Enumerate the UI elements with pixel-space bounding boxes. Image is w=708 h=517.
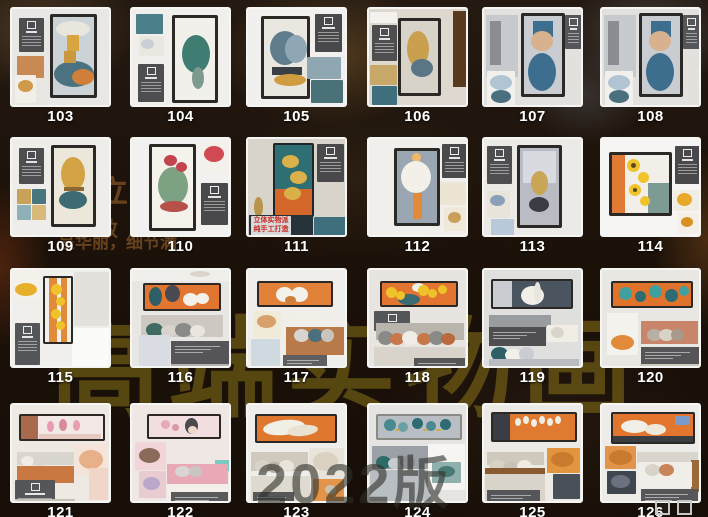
art-shape [440, 419, 451, 430]
corner-marks [648, 500, 692, 517]
art-shape [161, 420, 170, 429]
art-shape [411, 59, 433, 77]
art-shape [555, 416, 561, 424]
art-shape [72, 69, 94, 85]
art-shape [423, 429, 428, 431]
thumbnail-label: 108 [600, 108, 701, 125]
art-shape [679, 286, 689, 296]
thumbnail-item[interactable]: 116 [130, 268, 231, 386]
art-shape [74, 272, 110, 326]
art-shape [529, 197, 549, 212]
art-shape [257, 315, 276, 328]
thumbnail-image[interactable] [600, 137, 701, 237]
thumbnail-item[interactable]: 106 [367, 7, 468, 125]
caption-strip [171, 492, 228, 503]
art-shape [436, 429, 441, 431]
art-shape [412, 418, 423, 429]
art-shape [633, 188, 637, 192]
art-shape [691, 460, 700, 492]
art-shape [51, 309, 61, 319]
thumbnail-item[interactable]: 115 [10, 268, 111, 386]
info-card [15, 323, 40, 365]
art-shape [489, 359, 579, 368]
info-card [372, 25, 397, 61]
thumbnail-item[interactable]: 120 [600, 268, 701, 386]
art-shape [372, 86, 397, 105]
art-shape [160, 201, 188, 212]
art-shape [671, 329, 684, 341]
info-card [19, 148, 44, 184]
art-shape [251, 339, 280, 366]
art-shape [613, 436, 693, 442]
info-card [317, 144, 344, 182]
art-shape [640, 196, 650, 206]
thumbnail-image[interactable] [130, 268, 231, 368]
art-shape [611, 335, 634, 350]
thumbnail-image[interactable] [246, 7, 347, 107]
thumbnail-image[interactable] [482, 268, 583, 368]
art-shape [165, 285, 180, 302]
art-shape [139, 448, 160, 463]
art-shape [282, 155, 299, 168]
thumbnail-label: 122 [130, 504, 231, 517]
thumbnail-image[interactable] [600, 268, 701, 368]
thumbnail-image[interactable] [246, 268, 347, 368]
info-card [683, 15, 700, 49]
art-shape [648, 183, 669, 213]
thumbnail-image[interactable] [10, 403, 111, 503]
thumbnail-image[interactable] [10, 268, 111, 368]
art-shape [631, 163, 636, 168]
art-shape [17, 205, 31, 220]
watermark-edition-text: 2022版 [256, 456, 452, 512]
thumbnail-item[interactable]: 105 [246, 7, 347, 125]
art-shape [176, 162, 187, 172]
art-shape [551, 327, 564, 338]
art-shape [611, 475, 630, 488]
art-shape [61, 157, 85, 191]
art-shape [21, 416, 38, 439]
thumbnail-image[interactable] [482, 137, 583, 237]
thumbnail-item[interactable]: 104 [130, 7, 231, 125]
art-shape [321, 329, 334, 342]
art-shape [56, 321, 65, 330]
thumbnail-item[interactable]: 122 [130, 403, 231, 517]
thumbnail-label: 119 [482, 369, 583, 386]
art-shape [149, 416, 219, 437]
thumbnail-label: 121 [10, 504, 111, 517]
info-card [442, 144, 467, 178]
thumbnail-label: 107 [482, 108, 583, 125]
art-shape [681, 217, 693, 227]
art-shape [645, 464, 660, 476]
info-card [675, 146, 700, 184]
art-shape [290, 171, 307, 184]
art-shape [39, 434, 101, 439]
art-shape [64, 51, 76, 63]
info-card [138, 64, 164, 102]
art-shape [204, 146, 224, 162]
thumbnail-label: 111 [246, 238, 347, 255]
art-shape [143, 477, 160, 490]
info-card [487, 146, 512, 184]
art-shape [158, 167, 188, 205]
art-shape [136, 14, 163, 34]
art-shape [490, 195, 505, 206]
art-shape [56, 297, 65, 306]
thumbnail-item[interactable]: 103 [10, 7, 111, 125]
thumbnail-item[interactable]: 110 [130, 137, 231, 255]
thumbnail-label: 117 [246, 369, 347, 386]
thumbnail-label: 115 [10, 369, 111, 386]
thumbnail-image[interactable] [482, 7, 583, 107]
art-shape [285, 35, 307, 63]
caption-strip [171, 341, 230, 364]
art-shape [677, 193, 692, 206]
art-shape [32, 189, 46, 204]
art-shape [448, 212, 461, 223]
art-shape [491, 90, 511, 103]
art-shape [79, 450, 103, 469]
info-card [565, 15, 582, 49]
thumbnail-label: 110 [130, 238, 231, 255]
art-shape [51, 284, 62, 295]
art-shape [132, 270, 231, 281]
art-shape [493, 414, 510, 440]
art-shape [175, 466, 190, 477]
thumbnail-grid: 103104105106107108109110立体实物派 纯手工打造11111… [0, 0, 708, 517]
art-shape [190, 271, 210, 277]
thumbnail-item[interactable]: 119 [482, 268, 583, 386]
art-shape [284, 187, 301, 200]
art-shape [547, 418, 553, 426]
art-shape [489, 315, 551, 327]
thumbnail-image[interactable] [482, 403, 583, 503]
art-shape [619, 287, 632, 300]
art-shape [646, 53, 674, 91]
art-shape [72, 328, 110, 368]
thumbnail-label: 116 [130, 369, 231, 386]
art-shape [311, 80, 343, 103]
thumbnail-item[interactable]: 117 [246, 268, 347, 386]
art-shape [172, 424, 179, 431]
art-shape [635, 291, 646, 302]
art-shape [274, 74, 306, 86]
thumbnail-label: 114 [600, 238, 701, 255]
art-shape [59, 419, 67, 431]
art-shape [528, 53, 556, 91]
art-shape [531, 171, 548, 195]
thumbnail-item[interactable]: 125 [482, 403, 583, 517]
art-shape [395, 429, 400, 431]
art-shape [608, 75, 630, 90]
art-shape [649, 31, 671, 51]
thumbnail-label: 112 [367, 238, 468, 255]
thumbnail-image[interactable] [600, 403, 701, 503]
thumbnail-image[interactable]: 立体实物派 纯手工打造 [246, 137, 347, 237]
art-shape [523, 416, 529, 424]
thumbnail-item[interactable]: 107 [482, 7, 583, 125]
art-shape [490, 75, 512, 90]
art-shape [294, 329, 309, 342]
art-shape [490, 21, 501, 65]
caption-strip [489, 327, 546, 346]
thumbnail-item[interactable]: 108 [600, 7, 701, 125]
thumbnail-item[interactable]: 118 [367, 268, 468, 386]
art-shape [370, 12, 397, 23]
art-shape [396, 291, 405, 300]
art-shape [192, 67, 204, 89]
art-shape [413, 193, 422, 219]
thumbnail-label: 105 [246, 108, 347, 125]
thumbnail-item[interactable]: 113 [482, 137, 583, 255]
caption-strip [641, 347, 700, 364]
overlay-text: 立体实物派 纯手工打造 [251, 216, 291, 237]
art-shape [640, 364, 700, 368]
art-shape [609, 90, 629, 103]
thumbnail-label: 109 [10, 238, 111, 255]
art-shape [428, 289, 437, 298]
art-shape [453, 11, 466, 87]
art-shape [291, 311, 323, 325]
thumbnail-item[interactable]: 112 [367, 137, 468, 255]
thumbnail-item[interactable]: 114 [600, 137, 701, 255]
thumbnail-image[interactable] [130, 137, 231, 237]
art-shape [645, 424, 666, 435]
art-shape [441, 333, 455, 345]
art-shape [285, 296, 296, 304]
art-shape [534, 282, 541, 303]
art-shape [314, 217, 346, 237]
art-shape [370, 65, 397, 85]
art-shape [493, 281, 512, 307]
art-shape [515, 418, 521, 426]
art-shape [73, 420, 80, 431]
art-shape [196, 293, 209, 304]
art-shape [164, 155, 177, 166]
art-shape [621, 420, 648, 433]
thumbnail-image[interactable] [367, 7, 468, 107]
art-shape [531, 419, 537, 427]
art-shape [608, 21, 619, 65]
art-shape [189, 466, 202, 477]
art-shape [539, 416, 545, 424]
thumbnail-image[interactable] [600, 7, 701, 107]
art-shape [141, 39, 154, 49]
corner-square-icon [655, 500, 670, 515]
art-shape [612, 155, 625, 213]
art-shape [190, 325, 205, 337]
thumbnail-image[interactable] [367, 137, 468, 237]
thumbnail-image[interactable] [10, 7, 111, 107]
catalog-grid-screen: 高端实物画 2022版 立效有呈华丽，细节满 10310410510610710… [0, 0, 708, 517]
info-card [15, 480, 55, 500]
art-shape [17, 189, 31, 204]
thumbnail-label: 103 [10, 108, 111, 125]
art-shape [553, 474, 580, 499]
art-shape [440, 182, 467, 205]
art-shape [401, 161, 431, 193]
art-shape [188, 426, 197, 434]
art-shape [254, 197, 263, 217]
art-shape [67, 35, 79, 51]
thumbnail-item[interactable]: 立体实物派 纯手工打造111 [246, 137, 347, 255]
art-shape [491, 219, 514, 237]
art-shape [638, 172, 649, 183]
art-shape [531, 31, 553, 51]
thumbnail-item[interactable]: 109 [10, 137, 111, 255]
info-card [315, 14, 342, 52]
corner-square-icon [677, 500, 692, 515]
art-shape [15, 499, 75, 503]
thumbnail-image[interactable] [10, 137, 111, 237]
art-shape [149, 287, 162, 306]
art-shape [675, 416, 690, 425]
thumbnail-image[interactable] [367, 268, 468, 368]
art-shape [665, 289, 678, 302]
caption-strip [283, 355, 327, 368]
art-shape [33, 456, 46, 466]
info-card [19, 18, 44, 52]
art-shape [32, 205, 46, 220]
art-shape [609, 450, 632, 465]
thumbnail-item[interactable]: 121 [10, 403, 111, 517]
thumbnail-label: 113 [482, 238, 583, 255]
thumbnail-image[interactable] [130, 403, 231, 503]
art-shape [47, 421, 54, 432]
art-shape [402, 331, 418, 345]
info-card [201, 183, 228, 225]
art-shape [59, 191, 87, 209]
art-shape [15, 283, 37, 296]
art-shape [659, 464, 674, 476]
art-shape [649, 285, 662, 298]
art-shape [89, 468, 108, 500]
art-shape [307, 57, 341, 79]
art-shape [18, 80, 33, 92]
art-shape [551, 452, 574, 467]
caption-strip [414, 358, 465, 368]
thumbnail-image[interactable] [130, 7, 231, 107]
art-shape [171, 364, 230, 368]
thumbnail-label: 120 [600, 369, 701, 386]
thumbnail-label: 104 [130, 108, 231, 125]
thumbnail-label: 125 [482, 504, 583, 517]
thumbnail-label: 106 [367, 108, 468, 125]
caption-strip [487, 490, 540, 503]
art-shape [438, 285, 447, 294]
art-shape [139, 335, 170, 366]
thumbnail-label: 118 [367, 369, 468, 386]
